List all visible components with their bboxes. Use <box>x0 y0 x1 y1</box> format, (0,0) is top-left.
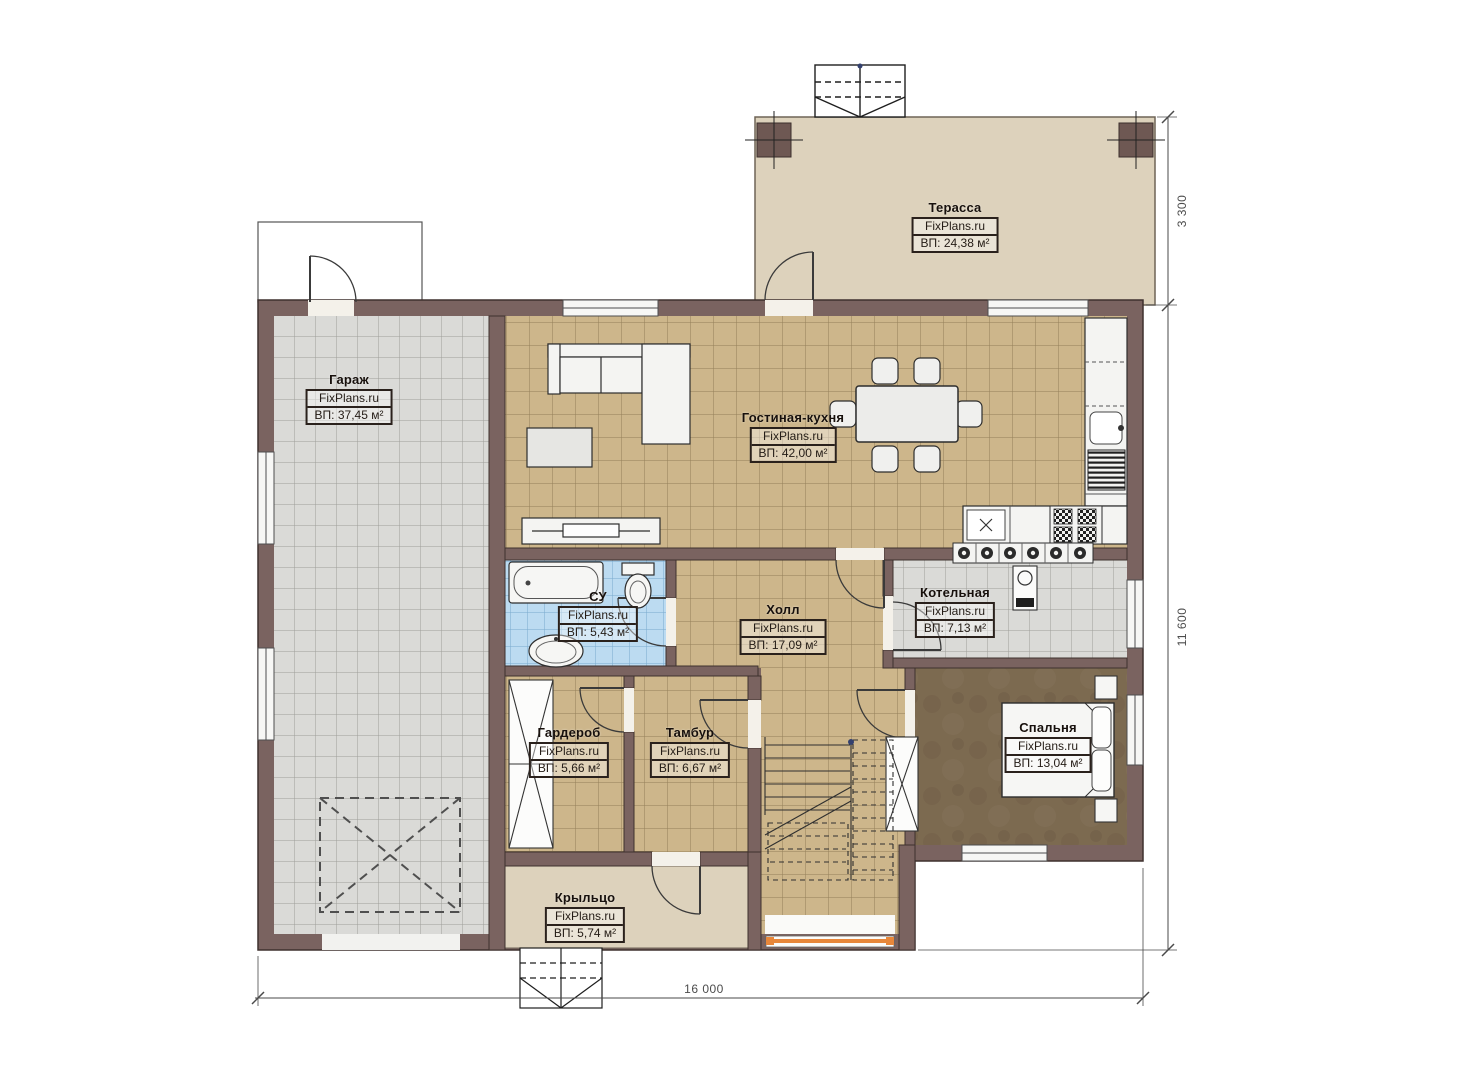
room-area: ВП: 5,66 м² <box>531 761 607 776</box>
room-label-vestibule: Тамбур FixPlans.ru ВП: 6,67 м² <box>650 725 730 778</box>
kitchen-counter-bottom <box>963 506 1127 544</box>
room-area: ВП: 6,67 м² <box>652 761 728 776</box>
watermark: FixPlans.ru <box>547 909 623 926</box>
watermark: FixPlans.ru <box>752 429 835 446</box>
terrace-steps <box>815 64 905 118</box>
room-name: Котельная <box>915 585 995 600</box>
watermark: FixPlans.ru <box>914 219 997 236</box>
room-area: ВП: 13,04 м² <box>1007 756 1090 771</box>
room-label-bathroom: СУ FixPlans.ru ВП: 5,43 м² <box>558 589 638 642</box>
room-label-boiler: Котельная FixPlans.ru ВП: 7,13 м² <box>915 585 995 638</box>
room-label-hall: Холл FixPlans.ru ВП: 17,09 м² <box>740 602 827 655</box>
hall-closet <box>886 737 918 831</box>
watermark: FixPlans.ru <box>560 608 636 625</box>
side-entrance-canopy <box>258 222 422 302</box>
watermark: FixPlans.ru <box>917 604 993 621</box>
kitchen-counter-right <box>1085 318 1127 506</box>
watermark: FixPlans.ru <box>1007 739 1090 756</box>
room-area: ВП: 5,74 м² <box>547 926 623 941</box>
room-name: Холл <box>740 602 827 617</box>
floor-plan-drawing <box>0 0 1473 1080</box>
room-name: Гараж <box>306 372 393 387</box>
room-label-terrace: Терасса FixPlans.ru ВП: 24,38 м² <box>912 200 999 253</box>
porch-floor <box>505 866 748 948</box>
porch-steps <box>520 948 602 1008</box>
room-name: Спальня <box>1005 720 1092 735</box>
tv-console <box>522 518 660 544</box>
room-label-garage: Гараж FixPlans.ru ВП: 37,45 м² <box>306 372 393 425</box>
room-name: Терасса <box>912 200 999 215</box>
room-area: ВП: 5,43 м² <box>560 625 636 640</box>
watermark: FixPlans.ru <box>308 391 391 408</box>
room-area: ВП: 37,45 м² <box>308 408 391 423</box>
room-label-porch: Крыльцо FixPlans.ru ВП: 5,74 м² <box>545 890 625 943</box>
stair-bay-landing <box>765 915 895 934</box>
floor-plan: Терасса FixPlans.ru ВП: 24,38 м² Гараж F… <box>0 0 1473 1080</box>
room-label-bedroom: Спальня FixPlans.ru ВП: 13,04 м² <box>1005 720 1092 773</box>
hall-lower-floor <box>761 668 905 852</box>
pillow <box>1092 707 1111 748</box>
room-name: СУ <box>558 589 638 604</box>
kitchen-sink <box>1090 412 1122 444</box>
room-name: Гостиная-кухня <box>742 410 844 425</box>
dimension-house-depth: 11 600 <box>1175 608 1189 647</box>
boiler-unit <box>1013 566 1037 610</box>
stair-window-orange <box>766 936 894 947</box>
room-area: ВП: 7,13 м² <box>917 621 993 636</box>
room-name: Тамбур <box>650 725 730 740</box>
dishwasher <box>1088 450 1125 490</box>
dimension-terrace-depth: 3 300 <box>1175 195 1189 228</box>
room-name: Крыльцо <box>545 890 625 905</box>
coffee-table <box>527 428 592 467</box>
room-label-living-kitchen: Гостиная-кухня FixPlans.ru ВП: 42,00 м² <box>742 410 844 463</box>
room-name: Гардероб <box>529 725 609 740</box>
dimension-house-width: 16 000 <box>684 982 724 996</box>
watermark: FixPlans.ru <box>742 621 825 638</box>
room-label-wardrobe: Гардероб FixPlans.ru ВП: 5,66 м² <box>529 725 609 778</box>
room-area: ВП: 42,00 м² <box>752 446 835 461</box>
hob-row <box>953 543 1093 563</box>
room-area: ВП: 24,38 м² <box>914 236 997 251</box>
pillow <box>1092 750 1111 791</box>
watermark: FixPlans.ru <box>652 744 728 761</box>
room-area: ВП: 17,09 м² <box>742 638 825 653</box>
watermark: FixPlans.ru <box>531 744 607 761</box>
